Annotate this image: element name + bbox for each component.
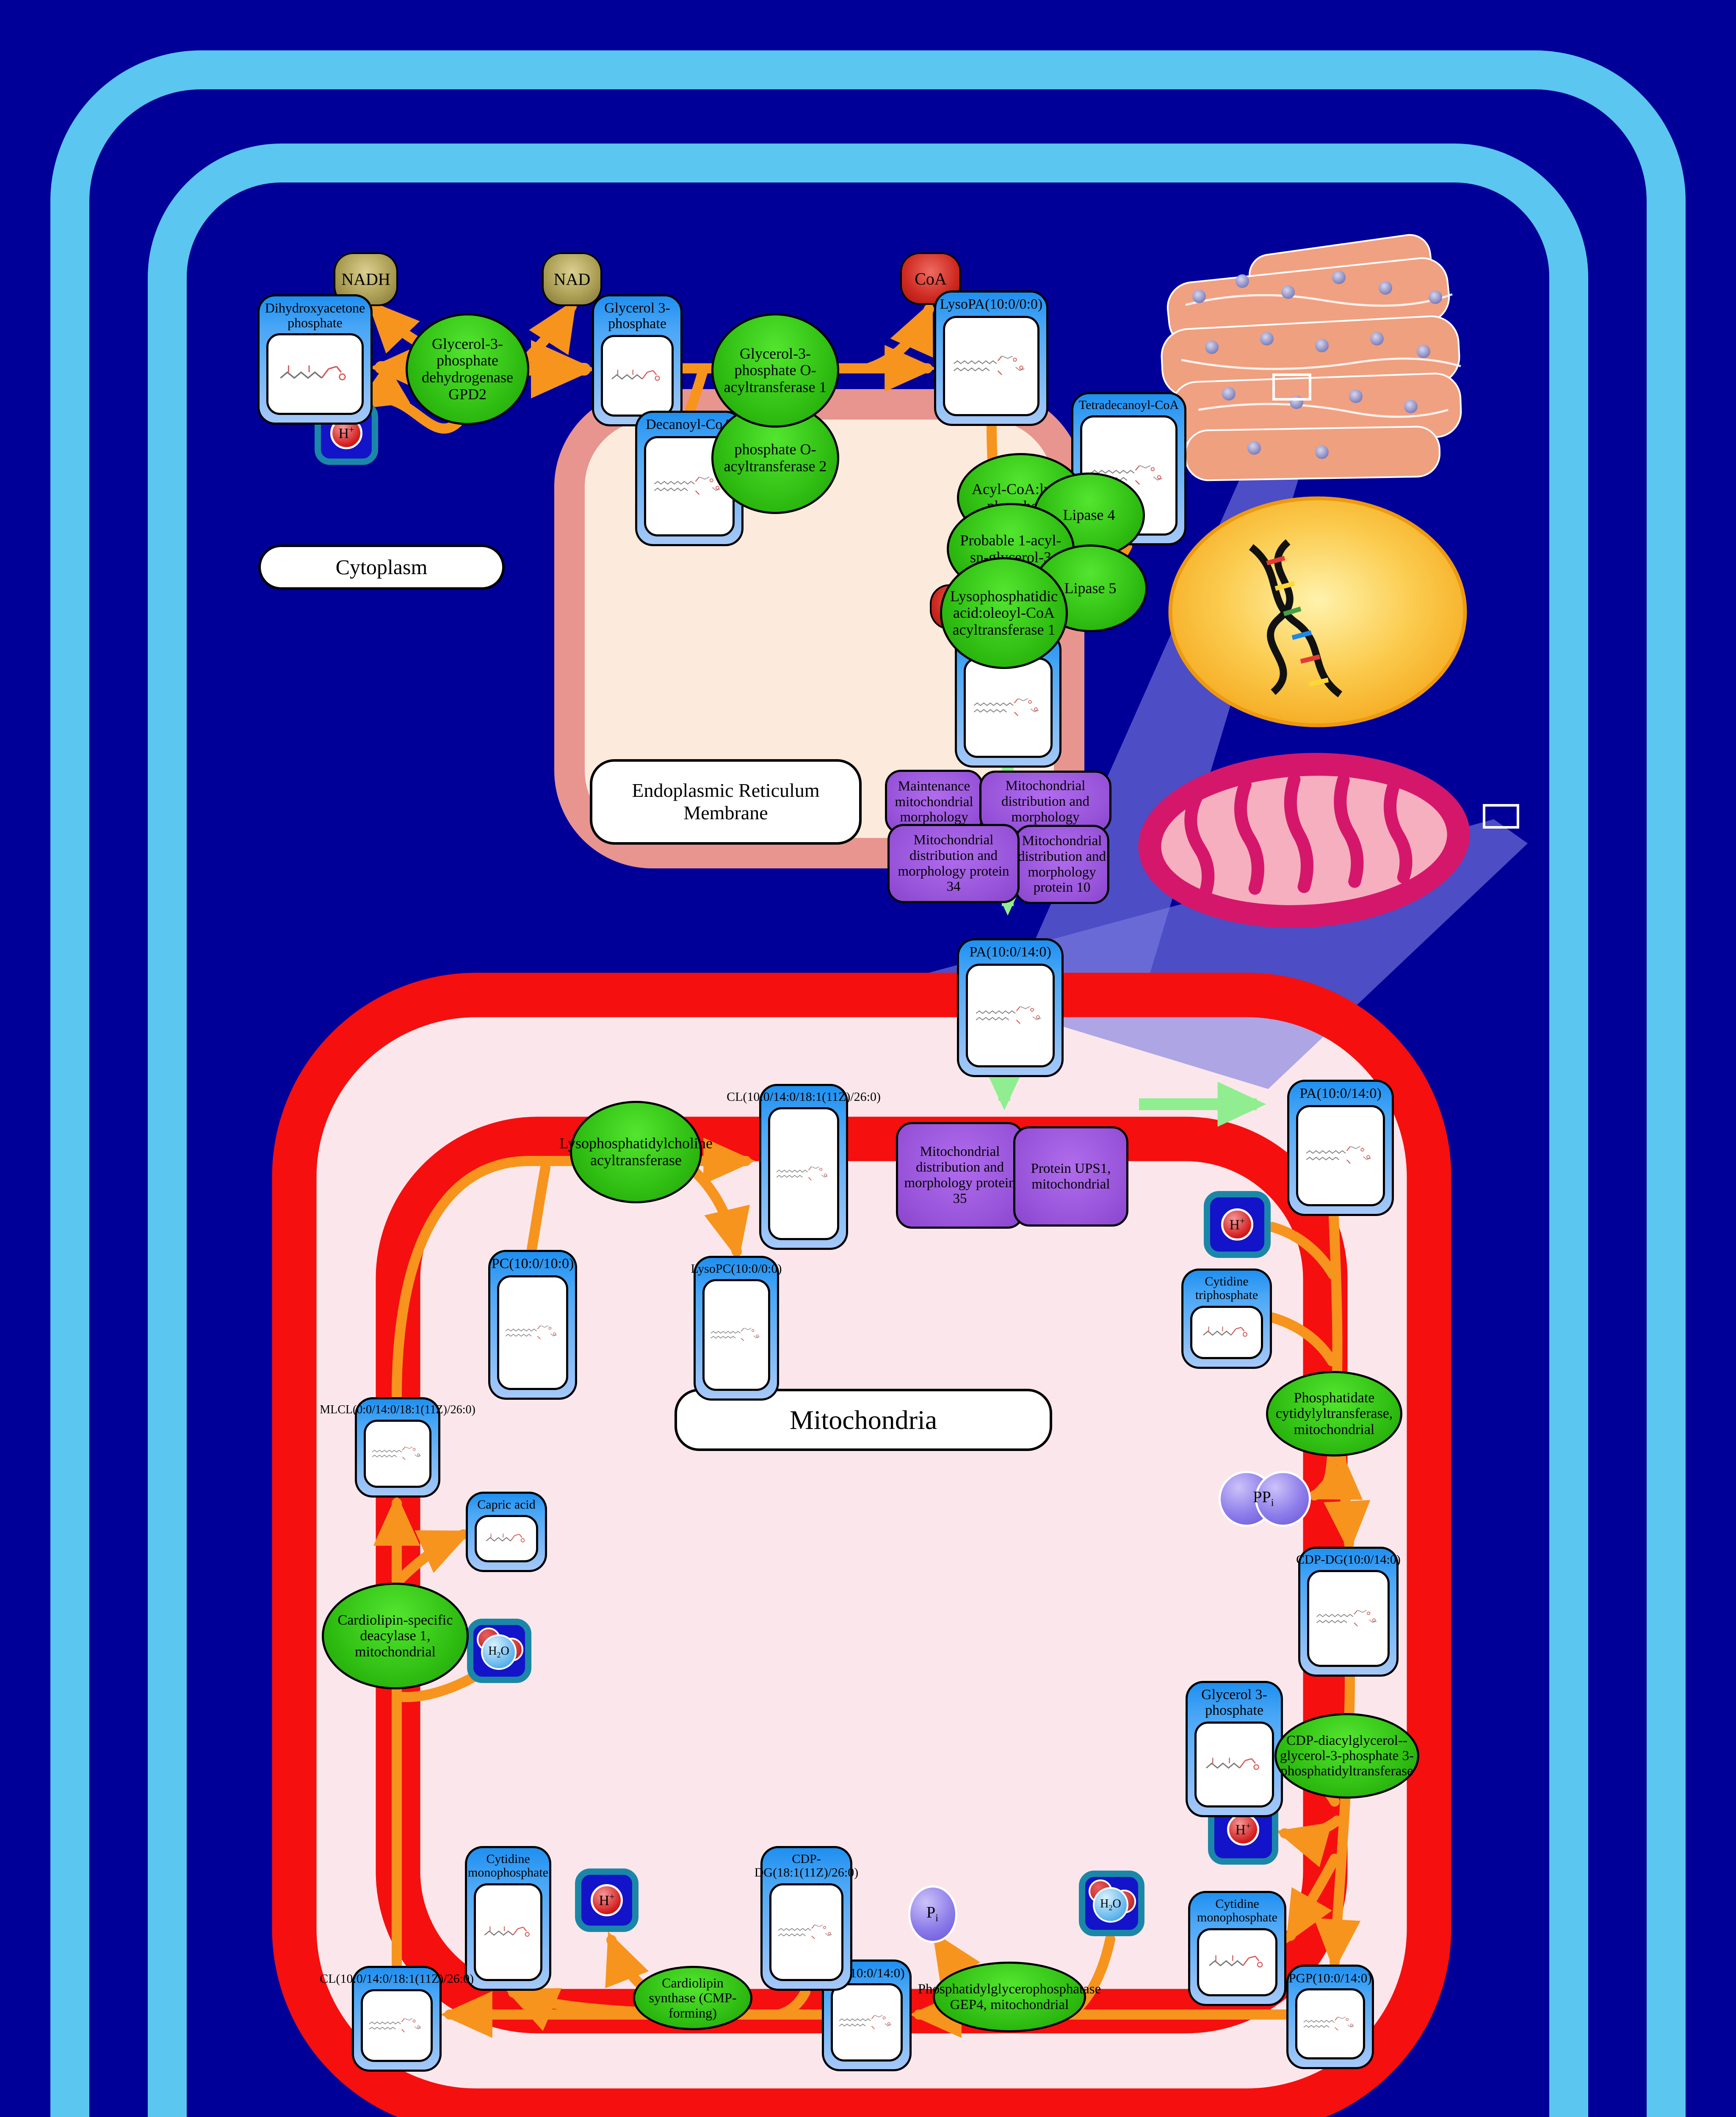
enzyme-gpd2[interactable]: Glycerol-3-phosphate dehydrogenase GPD2 <box>406 313 529 425</box>
metabolite-lysopa[interactable]: LysoPA(10:0/0:0) <box>934 290 1048 426</box>
enzyme-cardiolipin-deacylase-1[interactable]: Cardiolipin-specific deacylase 1, mitoch… <box>322 1583 469 1689</box>
er-illustration <box>1160 232 1462 481</box>
metabolite-pgp[interactable]: PGP(10:0/14:0) <box>1286 1965 1374 2069</box>
protein-mdm[interactable]: Mitochondrial distribution and morpholog… <box>979 771 1111 833</box>
water-icon[interactable]: H2O <box>1079 1871 1144 1936</box>
metabolite-g3p[interactable]: Glycerol 3-phosphate <box>592 294 683 426</box>
metabolite-g3p-mito[interactable]: Glycerol 3-phosphate <box>1186 1681 1283 1817</box>
cytoplasm-label: Cytoplasm <box>258 544 505 590</box>
hydrogen-ion-icon[interactable]: H+ <box>1204 1191 1271 1258</box>
hydrogen-ion-icon[interactable]: H+ <box>575 1868 639 1932</box>
metabolite-lysopc[interactable]: LysoPC(10:0/0:0) <box>694 1256 779 1401</box>
pathway-diagram: Cytoplasm Endoplasmic Reticulum Membrane… <box>0 0 1736 2117</box>
metabolite-cmp-left[interactable]: Cytidine monophosphate <box>465 1846 551 1991</box>
er-membrane-label: Endoplasmic Reticulum Membrane <box>590 759 862 845</box>
protein-mdm35[interactable]: Mitochondrial distribution and morpholog… <box>896 1122 1024 1229</box>
water-icon[interactable]: H2O <box>467 1619 531 1683</box>
enzyme-phosphatidate-cytidylyltransferase[interactable]: Phosphatidate cytidylyltransferase, mito… <box>1266 1371 1402 1456</box>
protein-ups1[interactable]: Protein UPS1, mitochondrial <box>1013 1126 1128 1227</box>
enzyme-gpat1[interactable]: Glycerol-3-phosphate O-acyltransferase 1 <box>711 313 839 428</box>
metabolite-cdp-dg[interactable]: CDP-DG(10:0/14:0) <box>1298 1547 1399 1677</box>
nucleus-illustration <box>1170 498 1465 725</box>
enzyme-lpcat[interactable]: Lysophosphatidylcholine acyltransferase <box>570 1101 702 1203</box>
metabolite-cmp-right[interactable]: Cytidine monophosphate <box>1188 1891 1286 2006</box>
enzyme-cardiolipin-synthase[interactable]: Cardiolipin synthase (CMP-forming) <box>633 1966 752 2030</box>
metabolite-capric-acid[interactable]: Capric acid <box>466 1492 547 1572</box>
enzyme-cdp-dag-g3p-phosphatidyltransferase[interactable]: CDP-diacylglycerol--glycerol-3-phosphate… <box>1274 1713 1419 1799</box>
metabolite-cl-bottom[interactable]: CL(10:0/14:0/18:1(11Z)/26:0) <box>352 1966 442 2072</box>
metabolite-pa-inner[interactable]: PA(10:0/14:0) <box>1287 1080 1394 1216</box>
protein-mdm34[interactable]: Mitochondrial distribution and morpholog… <box>887 824 1020 903</box>
metabolite-mlcl[interactable]: MLCL(0:0/14:0/18:1(11Z)/26:0) <box>355 1397 440 1498</box>
metabolite-cdp-dg-2[interactable]: CDP-DG(18:1(11Z)/26:0) <box>760 1846 852 1991</box>
pyrophosphate-node[interactable]: PPi <box>1219 1468 1308 1528</box>
nad-node[interactable]: NAD <box>542 252 602 306</box>
metabolite-ctp[interactable]: Cytidine triphosphate <box>1181 1269 1272 1369</box>
metabolite-pc[interactable]: PC(10:0/10:0) <box>488 1250 577 1400</box>
metabolite-dhap[interactable]: Dihydroxyacetone phosphate <box>257 294 373 425</box>
protein-mdm10[interactable]: Mitochondrial distribution and morpholog… <box>1015 825 1109 904</box>
enzyme-gep4[interactable]: Phosphatidylglycerophosphatase GEP4, mit… <box>933 1962 1086 2032</box>
metabolite-cl-top[interactable]: CL(10:0/14:0/18:1(11Z)/26:0) <box>759 1084 848 1250</box>
enzyme-lpaat1[interactable]: Lysophosphatidic acid:oleoyl-CoA acyltra… <box>940 557 1068 669</box>
metabolite-pa-translocated[interactable]: PA(10:0/14:0) <box>957 938 1064 1077</box>
phosphate-node[interactable]: Pi <box>908 1885 956 1942</box>
